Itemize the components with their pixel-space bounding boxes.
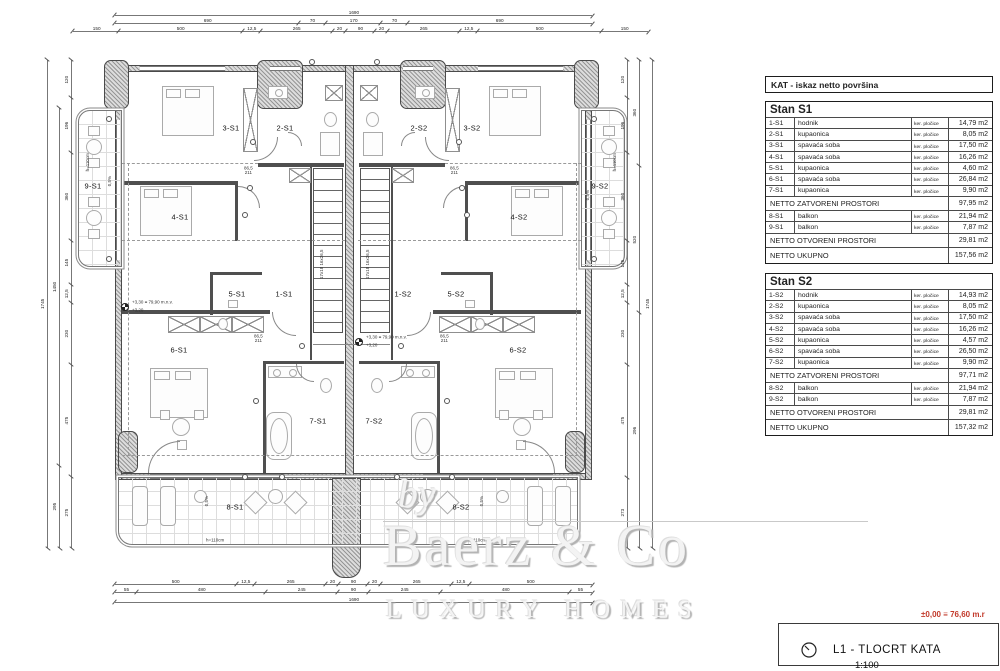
level-note-sub: +3,20 <box>366 343 377 348</box>
table-row: 8-S1 balkon ker. pločice 21,94 m2 <box>766 210 992 221</box>
finish-text: ker. pločice <box>914 213 939 219</box>
subtotal-open-row: NETTO OTVORENI PROSTORI 29,81 m2 <box>766 233 992 247</box>
finish-text: ker. pločice <box>914 348 939 354</box>
dim-segment: 70 <box>381 17 407 24</box>
dim-label: 1690 <box>348 10 358 15</box>
dim-segment: 500 <box>119 25 242 32</box>
sink <box>415 86 435 99</box>
room-code-cell: 8-S1 <box>766 211 794 221</box>
wardrobe-icon <box>392 168 414 183</box>
area-cell: 8,05 m2 <box>948 129 991 139</box>
table-row: 2-S2 kupaonica ker. pločice 8,05 m2 <box>766 300 992 311</box>
room-label: 4-S2 <box>510 213 527 222</box>
parapet-height-note: h=110cm <box>86 153 91 171</box>
dim-label: 150 <box>621 26 629 31</box>
handle-icon <box>106 256 112 262</box>
interior-wall <box>210 272 213 315</box>
door-swing <box>407 312 431 336</box>
finish-text: ker. pločice <box>914 303 939 309</box>
table-rows: 1-S2 hodnik ker. pločice 14,93 m2 2-S2 k… <box>766 289 992 368</box>
dim-chain-bottom-detail: 500 12,5 265 20 90 20 265 12,5 500 <box>115 578 592 585</box>
room-label: 6-S2 <box>509 346 526 355</box>
finish-cell: ker. pločice <box>911 174 948 184</box>
finish-cell: ker. pločice <box>911 358 948 368</box>
pillow <box>520 371 536 380</box>
handle-icon <box>309 59 315 65</box>
room-name-cell: balkon <box>794 211 911 221</box>
handle-icon <box>242 474 248 480</box>
dim-segment: 55 <box>570 586 592 593</box>
table-stan-s2: Stan S2 1-S2 hodnik ker. pločice 14,93 m… <box>765 273 993 436</box>
finish-cell: ker. pločice <box>911 118 948 128</box>
room-code-cell: 3-S2 <box>766 313 794 323</box>
dim-label: 520 <box>633 235 638 243</box>
room-label: 4-S1 <box>171 213 188 222</box>
dim-label: 690 <box>203 18 211 23</box>
room-label: 6-S1 <box>170 346 187 355</box>
sink-basin <box>273 369 281 377</box>
dim-label: 90 <box>351 579 356 584</box>
finish-cell: ker. pločice <box>911 163 948 173</box>
vanity <box>320 132 340 156</box>
table-row: 1-S1 hodnik ker. pločice 14,79 m2 <box>766 117 992 128</box>
dim-label: 500 <box>172 579 180 584</box>
panel-header: KAT - iskaz netto površina <box>765 76 993 93</box>
window <box>140 66 225 71</box>
finish-cell: ker. pločice <box>911 290 948 300</box>
door-swing <box>272 312 296 336</box>
dim-label: 196 <box>621 122 626 130</box>
table-row: 4-S2 spavaća soba ker. pločice 16,26 m2 <box>766 323 992 334</box>
dim-segment: 500 <box>115 578 237 585</box>
finish-text: ker. pločice <box>914 292 939 298</box>
dim-chain-left-overall: 1745 <box>40 60 48 548</box>
table-row: 5-S1 kupaonica ker. pločice 4,60 m2 <box>766 162 992 173</box>
party-wall <box>345 65 354 478</box>
table-row: 8-S2 balkon ker. pločice 21,94 m2 <box>766 382 992 393</box>
interior-wall <box>122 181 235 185</box>
dim-segment: 145 <box>64 241 72 285</box>
handle-icon <box>250 139 256 145</box>
handle-icon <box>464 212 470 218</box>
interior-wall <box>468 181 581 185</box>
level-note-sub: +3,20 <box>132 308 143 313</box>
dim-label: 12,5 <box>621 290 626 299</box>
toilet <box>475 318 485 330</box>
dim-segment: 196 <box>64 98 72 152</box>
dim-label: 12,5 <box>65 290 70 299</box>
wardrobe-icon <box>360 85 378 101</box>
subtotal-label: NETTO ZATVORENI PROSTORI <box>766 197 948 210</box>
dim-label: 360 <box>65 193 70 201</box>
stairwell-wall <box>391 163 393 360</box>
pillow <box>512 89 527 98</box>
door-size-tag: 86,5211 <box>254 334 263 343</box>
table-stan-s1: Stan S1 1-S1 hodnik ker. pločice 14,79 m… <box>765 101 993 264</box>
table-row: 7-S2 kupaonica ker. pločice 9,90 m2 <box>766 357 992 368</box>
room-label: 7-S1 <box>309 417 326 426</box>
dim-label: 20 <box>379 26 384 31</box>
dim-label: 296 <box>633 426 638 434</box>
pillow <box>534 189 549 198</box>
dim-label: 20 <box>330 579 335 584</box>
table <box>513 418 531 436</box>
finish-text: ker. pločice <box>914 188 939 194</box>
interior-wall <box>441 272 493 275</box>
dim-label: 295 <box>53 503 58 511</box>
dim-segment: 1690 <box>115 9 592 16</box>
room-code-cell: 5-S1 <box>766 163 794 173</box>
door-size-tag: 86,5211 <box>440 334 449 343</box>
handle-icon <box>591 116 597 122</box>
table-row: 1-S2 hodnik ker. pločice 14,93 m2 <box>766 289 992 300</box>
watermark-tagline: LUXURY HOMES <box>386 596 702 624</box>
sink <box>465 300 475 308</box>
table-row: 4-S1 spavaća soba ker. pločice 16,26 m2 <box>766 151 992 162</box>
subtotal-closed-row: NETTO ZATVORENI PROSTORI 97,95 m2 <box>766 196 992 210</box>
door-swing <box>401 132 415 146</box>
door-size-tag: 86,5211 <box>450 166 459 175</box>
table <box>268 489 283 504</box>
door-swing <box>296 364 314 382</box>
dim-segment: 145 <box>620 241 628 285</box>
vanity <box>363 132 383 156</box>
dim-segment: 690 <box>408 17 592 24</box>
dim-segment: 1745 <box>40 60 48 548</box>
dim-label: 480 <box>502 587 510 592</box>
dim-segment: 150 <box>73 25 119 32</box>
chair <box>603 197 615 207</box>
dim-label: 12,5 <box>247 26 256 31</box>
room-label: 8-S1 <box>226 503 243 512</box>
wardrobe-icon <box>503 316 535 333</box>
dim-segment: 480 <box>441 586 570 593</box>
bed <box>140 186 192 236</box>
slope-note: 0,5% <box>108 176 113 186</box>
door-swing <box>288 132 302 146</box>
dim-segment: 265 <box>381 578 452 585</box>
dim-label: 170 <box>350 18 358 23</box>
room-code-cell: 7-S1 <box>766 186 794 196</box>
table-row: 6-S1 spavaća soba ker. pločice 26,84 m2 <box>766 173 992 184</box>
sink-basin <box>275 89 283 97</box>
dim-label: 360 <box>621 193 626 201</box>
dim-segment: 120 <box>620 60 628 98</box>
finish-text: ker. pločice <box>914 396 939 402</box>
room-name-cell: kupaonica <box>794 335 911 345</box>
dim-label: 500 <box>536 26 544 31</box>
table-rows: 8-S1 balkon ker. pločice 21,94 m2 9-S1 b… <box>766 210 992 233</box>
projection-line <box>445 163 581 164</box>
dim-label: 145 <box>621 259 626 267</box>
room-code-cell: 4-S2 <box>766 324 794 334</box>
chair <box>603 229 615 239</box>
handle-icon <box>374 59 380 65</box>
room-label: 9-S1 <box>84 182 101 191</box>
room-code-cell: 8-S2 <box>766 383 794 393</box>
drawing-scale: 1:100 <box>855 660 879 671</box>
dim-label: 265 <box>420 26 428 31</box>
bathtub <box>266 412 292 460</box>
sink <box>268 86 288 99</box>
chair <box>88 126 100 136</box>
dim-segment: 475 <box>64 365 72 478</box>
bathtub-basin <box>415 418 433 454</box>
stair-note: 17x18 16x26,5 <box>320 250 325 279</box>
area-cell: 4,57 m2 <box>948 335 991 345</box>
area-cell: 16,26 m2 <box>948 324 991 334</box>
table-rows: 8-S2 balkon ker. pločice 21,94 m2 9-S2 b… <box>766 382 992 405</box>
sun-lounger <box>132 486 148 526</box>
toilet <box>320 378 332 393</box>
dim-segment: 265 <box>261 25 333 32</box>
room-name-cell: spavaća soba <box>794 324 911 334</box>
table-row: 7-S1 kupaonica ker. pločice 9,90 m2 <box>766 185 992 196</box>
dim-segment: 230 <box>620 303 628 364</box>
dim-chain-right-overall: 1745 <box>645 60 653 548</box>
title-block: L1 - TLOCRT KATA 1:100 <box>778 623 999 666</box>
dim-label: 275 <box>65 509 70 517</box>
door-swing <box>425 137 449 161</box>
table-title: Stan S2 <box>766 274 992 289</box>
dim-label: 500 <box>177 26 185 31</box>
finish-text: ker. pločice <box>914 326 939 332</box>
dim-label: 1745 <box>646 299 651 309</box>
dim-label: 120 <box>621 75 626 83</box>
dim-segment: 150 <box>602 25 648 32</box>
pillow <box>144 189 159 198</box>
handle-icon <box>106 116 112 122</box>
total-row: NETTO UKUPNO 157,56 m2 <box>766 247 992 263</box>
pilaster <box>565 431 585 473</box>
dim-label: 196 <box>65 122 70 130</box>
chair <box>603 126 615 136</box>
stair-landing-line <box>313 344 390 345</box>
handle-icon <box>456 139 462 145</box>
room-code-cell: 4-S1 <box>766 152 794 162</box>
projection-line <box>358 240 581 241</box>
bed <box>489 86 541 136</box>
area-cell: 7,87 m2 <box>948 222 991 232</box>
stair-note-risers: 17x18 <box>365 267 370 279</box>
panel-header-text: KAT - iskaz netto površina <box>771 80 878 90</box>
area-cell: 17,50 m2 <box>948 313 991 323</box>
interior-wall <box>490 272 493 315</box>
dim-label: 500 <box>527 579 535 584</box>
bathtub-basin <box>270 418 288 454</box>
dim-segment: 520 <box>632 166 640 313</box>
handle-icon <box>242 212 248 218</box>
room-label: 2-S2 <box>410 124 427 133</box>
watermark-brand: Baerz & Co <box>383 512 690 579</box>
table <box>496 490 509 503</box>
finish-text: ker. pločice <box>914 224 939 230</box>
finish-text: ker. pločice <box>914 165 939 171</box>
subtotal-value: 29,81 m2 <box>948 234 991 247</box>
level-note: +3,30 ≡ 79,90 m.n.v. <box>132 300 173 305</box>
room-code-cell: 6-S2 <box>766 346 794 356</box>
stair-note-treads: 16x26,5 <box>319 250 324 266</box>
table-row: 9-S1 balkon ker. pločice 7,87 m2 <box>766 221 992 232</box>
subtotal-label: NETTO OTVORENI PROSTORI <box>766 234 948 247</box>
slope-note: 0,5% <box>480 496 485 506</box>
projection-line <box>122 240 345 241</box>
room-label: 3-S2 <box>463 124 480 133</box>
door-swing <box>523 441 555 473</box>
dim-label: 55 <box>578 587 583 592</box>
toilet <box>371 378 383 393</box>
dim-segment: 690 <box>115 17 299 24</box>
dim-label: 55 <box>123 587 128 592</box>
room-name-cell: kupaonica <box>794 129 911 139</box>
dim-label: 70 <box>392 18 397 23</box>
total-label: NETTO UKUPNO <box>766 420 948 435</box>
pilaster <box>574 60 599 109</box>
finish-cell: ker. pločice <box>911 383 948 393</box>
finish-text: ker. pločice <box>914 315 939 321</box>
wardrobe-icon <box>232 316 264 333</box>
window <box>478 66 563 71</box>
finish-cell: ker. pločice <box>911 222 948 232</box>
room-name-cell: kupaonica <box>794 358 911 368</box>
room-name-cell: spavaća soba <box>794 141 911 151</box>
dim-segment: 360 <box>620 153 628 242</box>
interior-wall <box>437 361 440 473</box>
dim-label: 70 <box>310 18 315 23</box>
dim-segment: 500 <box>478 25 601 32</box>
dim-label: 90 <box>351 587 356 592</box>
wardrobe-icon <box>168 316 200 333</box>
dim-label: 265 <box>413 579 421 584</box>
dim-segment: 1745 <box>645 60 653 548</box>
finish-cell: ker. pločice <box>911 211 948 221</box>
dim-segment: 245 <box>266 586 338 593</box>
area-cell: 21,94 m2 <box>948 211 991 221</box>
room-label: 1-S2 <box>394 290 411 299</box>
table <box>172 418 190 436</box>
room-name-cell: spavaća soba <box>794 313 911 323</box>
dim-label: 90 <box>358 26 363 31</box>
table-title: Stan S1 <box>766 102 992 117</box>
wardrobe-icon <box>439 316 471 333</box>
dim-label: 1745 <box>41 299 46 309</box>
dim-chain-bottom-major: 55 480 245 90 245 480 55 <box>115 586 592 593</box>
dim-segment: 265 <box>255 578 326 585</box>
table-row: 5-S2 kupaonica ker. pločice 4,57 m2 <box>766 334 992 345</box>
room-label: 5-S1 <box>228 290 245 299</box>
finish-text: ker. pločice <box>914 360 939 366</box>
door-height: 211 <box>244 171 253 176</box>
pillow <box>493 89 508 98</box>
wardrobe-icon <box>289 168 311 183</box>
finish-text: ker. pločice <box>914 131 939 137</box>
window <box>270 66 300 71</box>
sink-basin <box>422 89 430 97</box>
finish-cell: ker. pločice <box>911 346 948 356</box>
dim-segment: 230 <box>64 303 72 364</box>
finish-text: ker. pločice <box>914 143 939 149</box>
subtotal-label: NETTO OTVORENI PROSTORI <box>766 406 948 419</box>
handle-icon <box>299 343 305 349</box>
room-code-cell: 1-S1 <box>766 118 794 128</box>
toilet <box>218 318 228 330</box>
watermark-by: by <box>398 470 436 517</box>
handle-icon <box>253 398 259 404</box>
dim-chain-left-mid: 1450 295 <box>52 108 60 548</box>
door-swing <box>148 441 180 473</box>
dim-label: 265 <box>293 26 301 31</box>
room-label: 7-S2 <box>365 417 382 426</box>
dim-label: 120 <box>65 75 70 83</box>
area-cell: 26,50 m2 <box>948 346 991 356</box>
subtotal-label: NETTO ZATVORENI PROSTORI <box>766 369 948 382</box>
room-name-cell: hodnik <box>794 118 911 128</box>
room-label: 9-S2 <box>591 182 608 191</box>
finish-text: ker. pločice <box>914 176 939 182</box>
sink <box>228 300 238 308</box>
stairwell-wall <box>310 163 312 360</box>
dim-label: 360 <box>633 109 638 117</box>
dim-label: 145 <box>65 259 70 267</box>
table-row: 6-S2 spavaća soba ker. pločice 26,50 m2 <box>766 345 992 356</box>
table-rows: 1-S1 hodnik ker. pločice 14,79 m2 2-S1 k… <box>766 117 992 196</box>
dim-label: 12,5 <box>456 579 465 584</box>
bed <box>162 86 214 136</box>
finish-text: ker. pločice <box>914 120 939 126</box>
handle-icon <box>247 185 253 191</box>
room-code-cell: 1-S2 <box>766 290 794 300</box>
dim-label: 12,5 <box>464 26 473 31</box>
area-cell: 8,05 m2 <box>948 301 991 311</box>
sink-basin <box>422 369 430 377</box>
projection-line <box>576 163 577 455</box>
room-code-cell: 9-S2 <box>766 394 794 404</box>
dim-segment: 196 <box>620 98 628 152</box>
finish-text: ker. pločice <box>914 385 939 391</box>
pillow <box>185 89 200 98</box>
room-label: 3-S1 <box>222 124 239 133</box>
dim-label: 230 <box>621 330 626 338</box>
subtotal-value: 97,71 m2 <box>948 369 991 382</box>
interior-wall <box>122 310 270 314</box>
floor-plan-sheet: { "panel": { "header": "KAT - iskaz nett… <box>0 0 1000 667</box>
door-height: 211 <box>450 171 459 176</box>
dim-label: 480 <box>198 587 206 592</box>
table-row: 3-S1 spavaća soba ker. pločice 17,50 m2 <box>766 140 992 151</box>
finish-cell: ker. pločice <box>911 324 948 334</box>
dim-label: 1450 <box>53 282 58 292</box>
parapet-height-note: h=110cm <box>206 538 224 543</box>
handle-icon <box>449 474 455 480</box>
finish-text: ker. pločice <box>914 154 939 160</box>
chair <box>499 410 509 420</box>
door-height: 211 <box>254 339 263 344</box>
projection-line <box>122 163 258 164</box>
wardrobe-icon <box>325 85 343 101</box>
dim-chain-right-mid: 360 520 296 <box>632 60 640 548</box>
room-name-cell: balkon <box>794 383 911 393</box>
chair <box>160 410 170 420</box>
area-cell: 17,50 m2 <box>948 141 991 151</box>
table-row: 2-S1 kupaonica ker. pločice 8,05 m2 <box>766 128 992 139</box>
room-name-cell: spavaća soba <box>794 346 911 356</box>
dim-label: 265 <box>287 579 295 584</box>
bed <box>511 186 563 236</box>
stair-note: 17x18 16x26,5 <box>366 250 371 279</box>
handle-icon <box>591 256 597 262</box>
dim-segment: 360 <box>64 153 72 242</box>
dim-label: 475 <box>621 417 626 425</box>
